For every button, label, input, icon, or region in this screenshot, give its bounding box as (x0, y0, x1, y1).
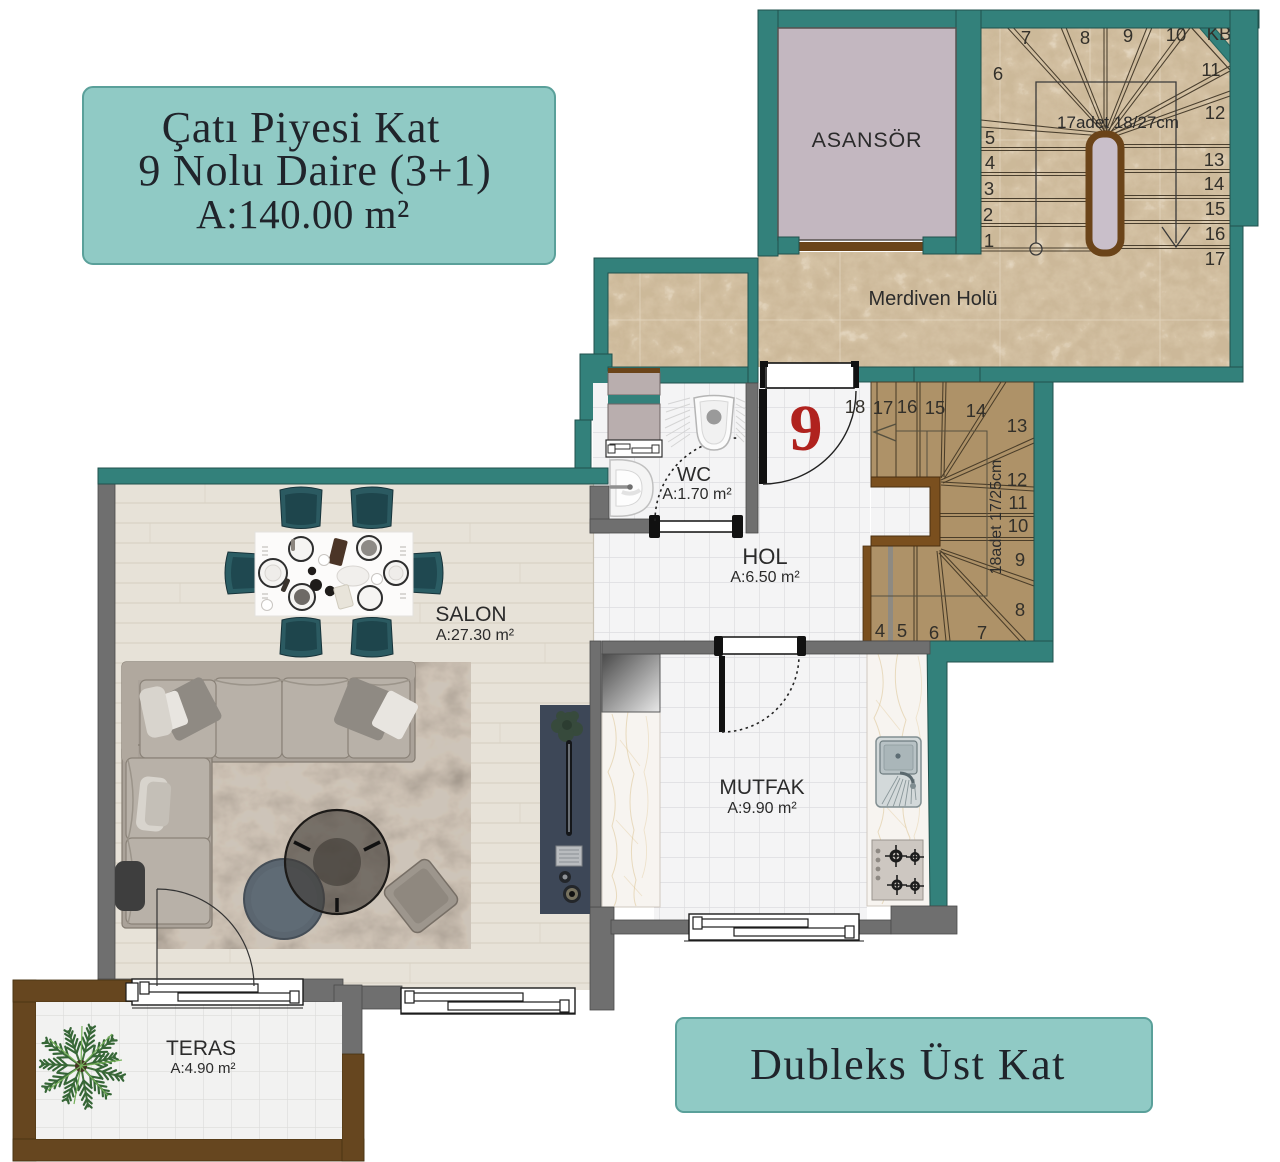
svg-text:14: 14 (1204, 173, 1225, 194)
svg-text:9 Nolu Daire (3+1): 9 Nolu Daire (3+1) (138, 146, 491, 195)
svg-text:12: 12 (1205, 102, 1226, 123)
svg-text:18adet 17/25cm: 18adet 17/25cm (988, 460, 1005, 575)
svg-text:1: 1 (984, 230, 994, 251)
svg-text:12: 12 (1007, 469, 1028, 490)
svg-text:9: 9 (1015, 549, 1025, 570)
svg-text:SALON: SALON (435, 603, 506, 626)
svg-text:14: 14 (966, 400, 987, 421)
svg-text:16: 16 (897, 396, 918, 417)
svg-text:8: 8 (1080, 27, 1090, 48)
svg-text:17: 17 (1205, 248, 1226, 269)
svg-text:2: 2 (983, 204, 993, 225)
svg-text:Merdiven Holü: Merdiven Holü (869, 288, 998, 310)
svg-text:Çatı Piyesi Kat: Çatı Piyesi Kat (162, 103, 440, 152)
svg-text:A:27.30 m²: A:27.30 m² (436, 627, 515, 644)
svg-text:A:140.00 m²: A:140.00 m² (196, 191, 410, 237)
svg-text:5: 5 (985, 127, 995, 148)
svg-text:TERAS: TERAS (166, 1037, 236, 1060)
svg-text:18: 18 (845, 396, 866, 417)
svg-text:A:6.50 m²: A:6.50 m² (730, 569, 800, 586)
svg-text:4: 4 (985, 152, 995, 173)
svg-text:11: 11 (1201, 59, 1220, 80)
svg-text:6: 6 (929, 622, 939, 643)
svg-text:MUTFAK: MUTFAK (719, 776, 804, 799)
svg-text:4: 4 (875, 620, 885, 641)
svg-text:3: 3 (984, 178, 994, 199)
svg-text:A:1.70 m²: A:1.70 m² (662, 486, 732, 503)
svg-text:A:9.90 m²: A:9.90 m² (727, 800, 797, 817)
svg-text:7: 7 (977, 622, 987, 643)
svg-text:17adet 18/27cm: 17adet 18/27cm (1057, 113, 1179, 132)
svg-text:6: 6 (993, 63, 1003, 84)
svg-text:10: 10 (1008, 515, 1029, 536)
svg-text:Dubleks Üst Kat: Dubleks Üst Kat (750, 1040, 1066, 1089)
svg-text:13: 13 (1204, 149, 1225, 170)
svg-text:16: 16 (1205, 223, 1226, 244)
svg-text:8: 8 (1015, 599, 1025, 620)
svg-text:7: 7 (1021, 27, 1031, 48)
svg-text:15: 15 (1205, 198, 1226, 219)
svg-text:HOL: HOL (742, 544, 787, 569)
svg-text:9: 9 (790, 392, 823, 465)
svg-text:11: 11 (1008, 492, 1027, 513)
svg-text:15: 15 (925, 397, 946, 418)
svg-text:17: 17 (873, 397, 894, 418)
svg-text:WC: WC (677, 463, 711, 486)
svg-text:5: 5 (897, 620, 907, 641)
svg-text:A:4.90 m²: A:4.90 m² (170, 1060, 235, 1077)
svg-text:13: 13 (1007, 415, 1028, 436)
svg-text:ASANSÖR: ASANSÖR (812, 128, 923, 152)
